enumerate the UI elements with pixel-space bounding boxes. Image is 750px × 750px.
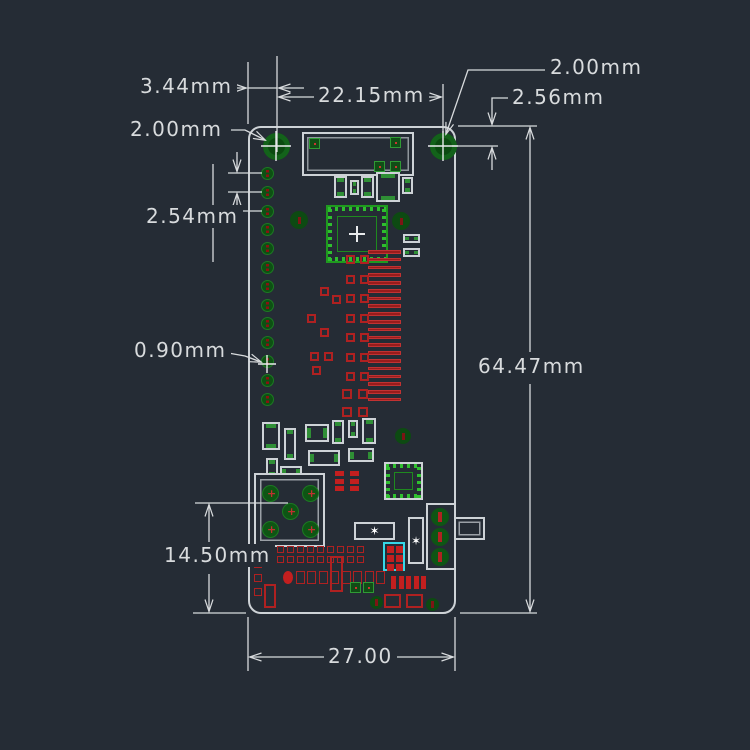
qfn-body-outline (394, 472, 413, 490)
fpc-display-connector (302, 132, 414, 176)
via (426, 598, 439, 611)
push-button-horizontal: ✶ (354, 522, 395, 540)
smd-component (334, 176, 347, 198)
dim-edge-to-hole: 3.44mm (136, 75, 237, 98)
header-pad (261, 205, 274, 218)
silkscreen-box (330, 556, 343, 592)
silkscreen-bar-stack (368, 250, 401, 401)
smd-component (262, 422, 280, 450)
star-mark-icon: ✶ (369, 524, 379, 538)
dim-hole-dia-left: 2.00mm (126, 118, 227, 141)
smd-component (361, 176, 374, 198)
silkscreen-pad (332, 295, 341, 304)
smd-component (402, 177, 413, 194)
header-pad (261, 186, 274, 199)
usb-shell-pad (302, 521, 319, 538)
push-button-vertical: ✶ (408, 517, 424, 564)
silkscreen-box (384, 594, 401, 608)
silkscreen-pad (324, 352, 333, 361)
smd-component (308, 450, 340, 466)
silkscreen-pad-stack (350, 471, 359, 491)
smd-component (284, 428, 296, 460)
usb-shell-pad (302, 485, 319, 502)
dim-board-width: 27.00 (324, 645, 397, 668)
silkscreen-pad (358, 407, 368, 417)
header-pad (261, 167, 274, 180)
silkscreen-pad-pairs (346, 255, 369, 381)
usb-shell-pad (262, 521, 279, 538)
via (392, 212, 410, 230)
smd-component (348, 448, 374, 462)
silkscreen-pad (320, 287, 329, 296)
header-pad (261, 317, 274, 330)
silkscreen-pad (307, 314, 316, 323)
header-pad-drill-target (261, 355, 274, 368)
silkscreen-grid (267, 546, 364, 563)
copper-pad (363, 582, 374, 593)
dim-board-length: 64.47mm (474, 355, 589, 378)
mounting-hole-right (430, 133, 457, 160)
star-mark-icon: ✶ (411, 534, 421, 548)
dim-header-pitch: 2.54mm (142, 205, 243, 228)
usb-center-pad (282, 503, 299, 520)
silkscreen-pad (310, 352, 319, 361)
dim-hole-spacing: 22.15mm (314, 84, 429, 107)
smd-component (350, 180, 359, 195)
connector-pad (309, 138, 320, 149)
header-pad (261, 374, 274, 387)
connector-pad (374, 161, 385, 172)
silkscreen-pad (342, 389, 352, 399)
usb-shell-pad (262, 485, 279, 502)
header-pad (261, 223, 274, 236)
header-pad (261, 242, 274, 255)
header-pad (261, 261, 274, 274)
dim-connector-to-edge: 14.50mm (160, 544, 275, 567)
power-switch (426, 503, 456, 570)
header-pad (261, 393, 274, 406)
switch-pad (431, 508, 449, 526)
smd-component (305, 424, 329, 442)
smd-component (362, 418, 376, 444)
smd-component (348, 420, 358, 438)
dim-top-offset-lines (492, 98, 509, 170)
highlighted-component (383, 542, 405, 571)
smd-component (332, 420, 344, 444)
header-pad (261, 280, 274, 293)
header-pad (261, 336, 274, 349)
via (370, 596, 383, 609)
connector-pad (390, 137, 401, 148)
connector-pad (390, 161, 401, 172)
copper-pad (350, 582, 361, 593)
dim-pad-drill: 0.90mm (130, 339, 231, 362)
silkscreen-pad-stack (335, 471, 344, 491)
smd-component (376, 172, 400, 202)
qfn-center-cross (356, 226, 358, 242)
silkscreen-box (406, 594, 423, 608)
dim-top-edge-to-hole: 2.56mm (508, 86, 609, 109)
smd-component (403, 248, 420, 257)
usb-connector (254, 473, 325, 547)
silkscreen-pad (312, 366, 321, 375)
switch-actuator (454, 517, 485, 540)
silkscreen-bar-row (391, 576, 426, 589)
silkscreen-pad (320, 328, 329, 337)
smd-component (403, 234, 420, 243)
header-pad (261, 299, 274, 312)
silkscreen-box (264, 584, 276, 608)
dim-hole-dia-right: 2.00mm (546, 56, 647, 79)
drawing-canvas: ✶ ✶ (0, 0, 750, 750)
switch-pad (431, 548, 449, 566)
silkscreen-pad (342, 407, 352, 417)
silkscreen-pad (358, 389, 368, 399)
switch-pad (431, 528, 449, 546)
via (290, 211, 308, 229)
pmic-qfn-footprint (384, 462, 423, 500)
pcb-board: ✶ ✶ (248, 126, 456, 614)
mounting-hole-left (263, 133, 290, 160)
via (395, 428, 411, 444)
pin-header-left (261, 167, 274, 406)
